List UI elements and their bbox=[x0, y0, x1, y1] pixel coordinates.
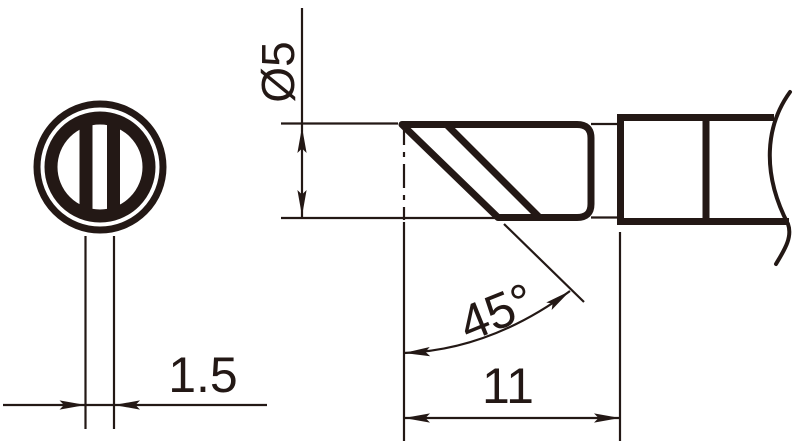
length-label: 11 bbox=[482, 358, 534, 414]
edge-thickness-label: 1.5 bbox=[168, 347, 238, 403]
bevel-edge bbox=[447, 125, 539, 217]
front-view: 1.5 bbox=[3, 104, 267, 429]
side-view: Ø5 45° 11 bbox=[252, 8, 790, 441]
angle-label: 45° bbox=[451, 272, 542, 352]
soldering-tip-drawing: 1.5 bbox=[0, 0, 800, 447]
diameter-label: Ø5 bbox=[252, 41, 304, 102]
tip-inner-ring bbox=[51, 118, 149, 216]
shank bbox=[617, 92, 790, 264]
dimension-angle: 45° bbox=[404, 272, 573, 357]
technical-drawing-canvas: 1.5 bbox=[0, 0, 800, 447]
dimension-edge-thickness: 1.5 bbox=[3, 236, 267, 429]
